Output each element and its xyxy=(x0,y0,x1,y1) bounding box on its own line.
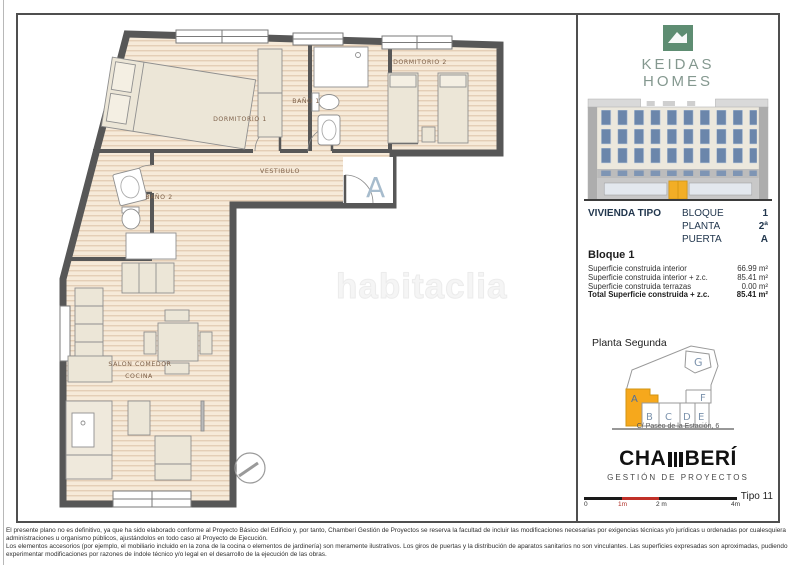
developer-logo-prefix: CHA xyxy=(619,447,666,471)
legal-paragraph-1: El presente plano no es definitivo, ya q… xyxy=(6,527,794,542)
keidas-logo-icon xyxy=(663,25,693,51)
scale-label-4m: 4m xyxy=(731,501,740,508)
room-label-salon: SALON COMEDOR xyxy=(108,361,171,368)
left-scan-line xyxy=(3,0,4,565)
surfaces-heading: Bloque 1 xyxy=(588,249,634,261)
room-label-banio-2: BAÑO 2 xyxy=(145,192,172,201)
developer-subtitle: GESTIÓN DE PROYECTOS xyxy=(578,473,778,482)
site-unit-d: D xyxy=(683,412,691,423)
scale-label-1m: 1m xyxy=(618,501,627,508)
site-unit-g: G xyxy=(694,356,703,369)
site-unit-e: E xyxy=(698,412,704,423)
wardrobe-icon xyxy=(258,49,282,137)
brand-name-line1: KEIDAS xyxy=(578,56,778,73)
unit-info-title: VIVIENDA TIPO xyxy=(588,207,682,246)
legal-paragraph-2: Los elementos accesorios (por ejemplo, e… xyxy=(6,543,794,558)
compass-symbol xyxy=(235,453,265,483)
building-elevation xyxy=(584,97,772,201)
type-label: Tipo 11 xyxy=(741,491,773,502)
site-unit-a: A xyxy=(631,394,638,405)
brand-name-line2: HOMES xyxy=(578,73,778,90)
scale-segment xyxy=(659,497,737,500)
plan-sheet: { "watermark": "habitaclia", "branding":… xyxy=(0,0,800,565)
room-label-dormitorio-2: DORMITORIO 2 xyxy=(393,59,447,66)
sheet-frame: DORMITORIO 1 BAÑO 1 DORMITORIO 2 VESTIBU… xyxy=(16,13,780,523)
site-plan-svg: G A B C D E F xyxy=(582,345,776,431)
developer-logo-suffix: BERÍ xyxy=(685,447,737,471)
site-unit-f: F xyxy=(700,393,706,404)
scale-label-2m: 2 m xyxy=(656,501,667,508)
room-label-banio-1: BAÑO 1 xyxy=(292,96,319,105)
hall-wardrobe-icon xyxy=(122,263,174,293)
scale-segment xyxy=(584,497,622,500)
site-plan-address: C/ Paseo de la Estación, 6 xyxy=(578,423,778,430)
room-label-dormitorio-1: DORMITORIO 1 xyxy=(213,116,267,123)
unit-info-row-bloque: BLOQUE 1 xyxy=(682,207,768,220)
site-unit-b: B xyxy=(646,412,653,423)
entrance-marker-a: A xyxy=(366,171,385,204)
surface-total-row: Total Superficie construida + z.c. 85.41… xyxy=(588,291,768,300)
room-label-cocina: COCINA xyxy=(125,373,153,380)
chamberi-bars-icon xyxy=(667,452,684,467)
scale-bar: 0 1m 2 m 4m xyxy=(584,497,742,513)
surfaces-table: Superficie construida interior 66.99 m² … xyxy=(588,265,768,300)
room-label-vestibulo: VESTIBULO xyxy=(260,168,300,175)
unit-info-table: VIVIENDA TIPO BLOQUE 1 PLANTA 2ª PUERTA … xyxy=(588,207,768,246)
watermark: habitaclia xyxy=(336,267,507,307)
scale-label-0: 0 xyxy=(584,501,588,508)
unit-info-row-planta: PLANTA 2ª xyxy=(682,220,768,233)
scale-segment-red xyxy=(622,497,659,500)
legal-disclaimer: El presente plano no es definitivo, ya q… xyxy=(6,527,794,559)
building-elevation-svg xyxy=(584,97,772,199)
unit-info-row-puerta: PUERTA A xyxy=(682,233,768,246)
brand-block: KEIDAS HOMES xyxy=(578,25,778,90)
sidebar: KEIDAS HOMES xyxy=(576,15,778,521)
developer-logo: CHA BERÍ xyxy=(578,447,778,471)
site-unit-c: C xyxy=(665,412,672,423)
